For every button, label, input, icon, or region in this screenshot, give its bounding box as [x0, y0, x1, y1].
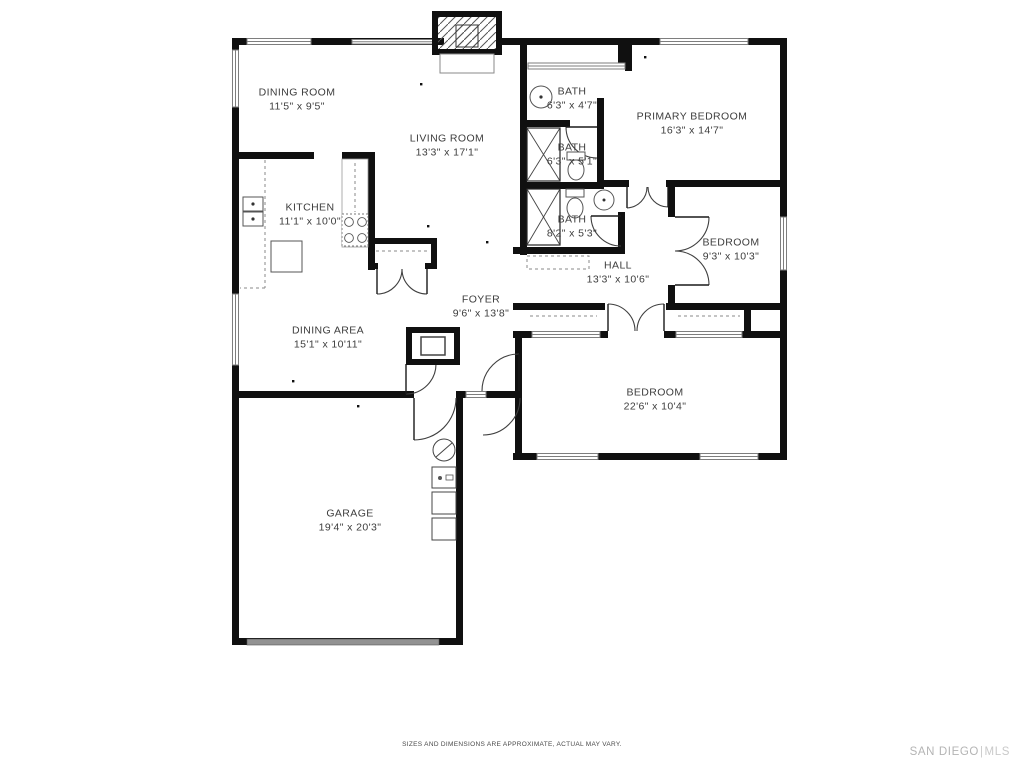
window-icon: [247, 39, 311, 45]
room-dims: 6'3" x 5'1": [547, 155, 597, 169]
room-name: HALL: [587, 259, 650, 273]
room-label-bedroom-large: BEDROOM 22'6" x 10'4": [624, 386, 687, 413]
stove-icon: [342, 214, 368, 246]
room-dims: 16'3" x 14'7": [637, 124, 748, 138]
brand-divider: |: [980, 746, 984, 758]
round-sink-icon: [594, 190, 614, 210]
kitchen-island-icon: [271, 241, 302, 272]
brand-suffix: MLS: [985, 746, 1010, 758]
window-icon: [352, 40, 434, 45]
garage-door-icon: [247, 639, 439, 645]
disclaimer-text: SIZES AND DIMENSIONS ARE APPROXIMATE, AC…: [402, 741, 622, 748]
brand-name: SAN DIEGO: [910, 746, 979, 758]
window-icon: [233, 50, 239, 107]
fireplace-icon: [435, 14, 499, 73]
mls-brand: SAN DIEGO|MLS: [910, 746, 1010, 758]
room-label-bath-top: BATH 6'3" x 4'7": [547, 85, 597, 112]
room-name: DINING ROOM: [259, 86, 336, 100]
room-label-dining-room: DINING ROOM 11'5" x 9'5": [259, 86, 336, 113]
water-heater-icon: [433, 439, 455, 461]
room-label-living-room: LIVING ROOM 13'3" x 17'1": [410, 132, 484, 159]
room-label-primary-bedroom: PRIMARY BEDROOM 16'3" x 14'7": [637, 110, 748, 137]
room-name: FOYER: [453, 293, 510, 307]
room-dims: 15'1" x 10'11": [292, 338, 364, 352]
room-name: DINING AREA: [292, 324, 364, 338]
room-label-hall: HALL 13'3" x 10'6": [587, 259, 650, 286]
room-dims: 19'4" x 20'3": [319, 521, 382, 535]
front-door-threshold: [466, 392, 486, 398]
room-name: BEDROOM: [624, 386, 687, 400]
garage-fixtures: [432, 439, 456, 540]
door-swing-icon: [627, 187, 647, 208]
room-label-kitchen: KITCHEN 11'1" x 10'0": [279, 201, 341, 228]
door-swing-icon: [406, 364, 436, 394]
sliding-door-icon: [532, 332, 600, 338]
window-icon: [528, 63, 625, 69]
laundry-appliance-icon: [432, 467, 456, 488]
floor-plan-page: DINING ROOM 11'5" x 9'5" LIVING ROOM 13'…: [0, 0, 1024, 768]
room-dims: 8'2" x 5'3": [547, 227, 597, 241]
room-label-dining-area: DINING AREA 15'1" x 10'11": [292, 324, 364, 351]
door-swing-icon: [608, 304, 635, 331]
room-dims: 13'3" x 10'6": [587, 273, 650, 287]
room-label-garage: GARAGE 19'4" x 20'3": [319, 507, 382, 534]
room-name: KITCHEN: [279, 201, 341, 215]
door-swing-icon: [648, 187, 668, 207]
room-dims: 11'5" x 9'5": [259, 100, 336, 114]
room-name: LIVING ROOM: [410, 132, 484, 146]
room-name: BATH: [547, 213, 597, 227]
room-dims: 13'3" x 17'1": [410, 146, 484, 160]
room-name: BATH: [547, 85, 597, 99]
laundry-appliance-icon: [432, 518, 456, 540]
door-swing-icon: [482, 354, 519, 391]
door-swing-icon: [377, 269, 402, 294]
room-dims: 11'1" x 10'0": [279, 215, 341, 229]
kitchen-sink-icon: [243, 197, 263, 226]
room-name: PRIMARY BEDROOM: [637, 110, 748, 124]
room-label-foyer: FOYER 9'6" x 13'8": [453, 293, 510, 320]
window-icon: [781, 217, 787, 270]
window-icon: [660, 39, 748, 45]
door-swing-icon: [414, 398, 456, 440]
room-name: BEDROOM: [702, 236, 759, 250]
room-dims: 6'3" x 4'7": [547, 99, 597, 113]
door-swing-icon: [402, 269, 427, 294]
window-icon: [537, 454, 598, 460]
room-dims: 9'6" x 13'8": [453, 307, 510, 321]
linen-counter-icon: [527, 256, 589, 269]
foyer-fireplace-icon: [409, 330, 457, 362]
sliding-door-icon: [676, 332, 742, 338]
laundry-appliance-icon: [432, 492, 456, 514]
room-name: GARAGE: [319, 507, 382, 521]
room-label-bath-bottom: BATH 8'2" x 5'3": [547, 213, 597, 240]
window-icon: [233, 294, 239, 365]
window-icon: [700, 454, 758, 460]
room-label-bedroom-small: BEDROOM 9'3" x 10'3": [702, 236, 759, 263]
door-swing-icon: [483, 398, 520, 435]
room-label-bath-middle: BATH 6'3" x 5'1": [547, 141, 597, 168]
door-swing-icon: [637, 304, 664, 331]
floor-plan-drawing: [0, 0, 1024, 768]
room-name: BATH: [547, 141, 597, 155]
room-dims: 9'3" x 10'3": [702, 250, 759, 264]
room-dims: 22'6" x 10'4": [624, 400, 687, 414]
